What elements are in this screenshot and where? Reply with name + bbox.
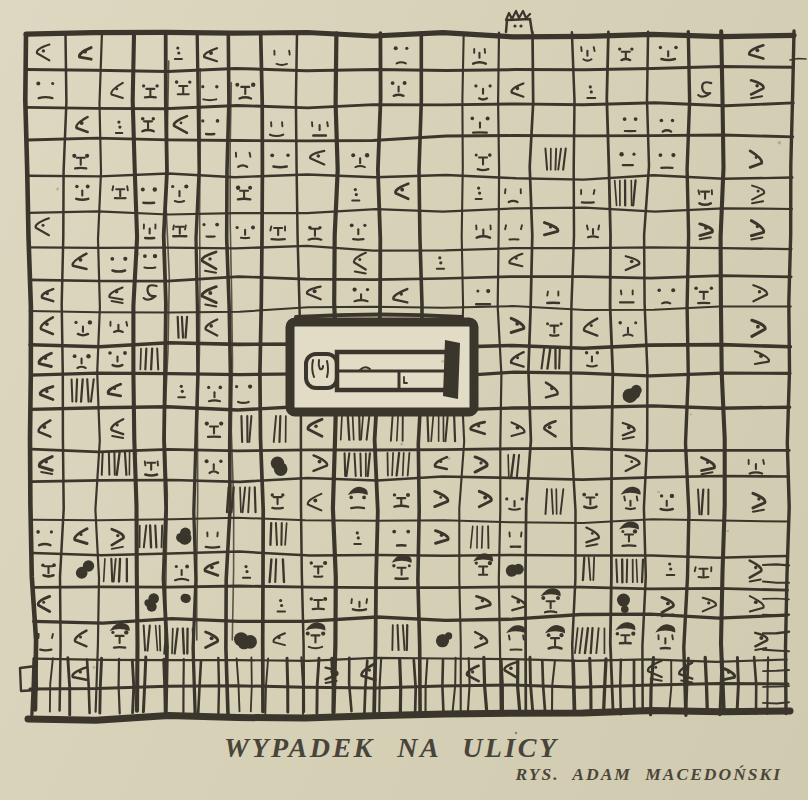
cartoon-figure: WYPADEK NA ULICY RYS. ADAM MACEDOŃSKI xyxy=(0,0,808,800)
caption-title: WYPADEK NA ULICY xyxy=(224,733,808,762)
magazine-page: WYPADEK NA ULICY RYS. ADAM MACEDOŃSKI xyxy=(0,0,808,800)
accident-panel xyxy=(290,315,474,413)
cartoon-illustration xyxy=(0,0,808,738)
caption-block: WYPADEK NA ULICY RYS. ADAM MACEDOŃSKI xyxy=(0,733,808,784)
caption-credit: RYS. ADAM MACEDOŃSKI xyxy=(0,765,808,783)
peeking-figure xyxy=(506,11,532,32)
